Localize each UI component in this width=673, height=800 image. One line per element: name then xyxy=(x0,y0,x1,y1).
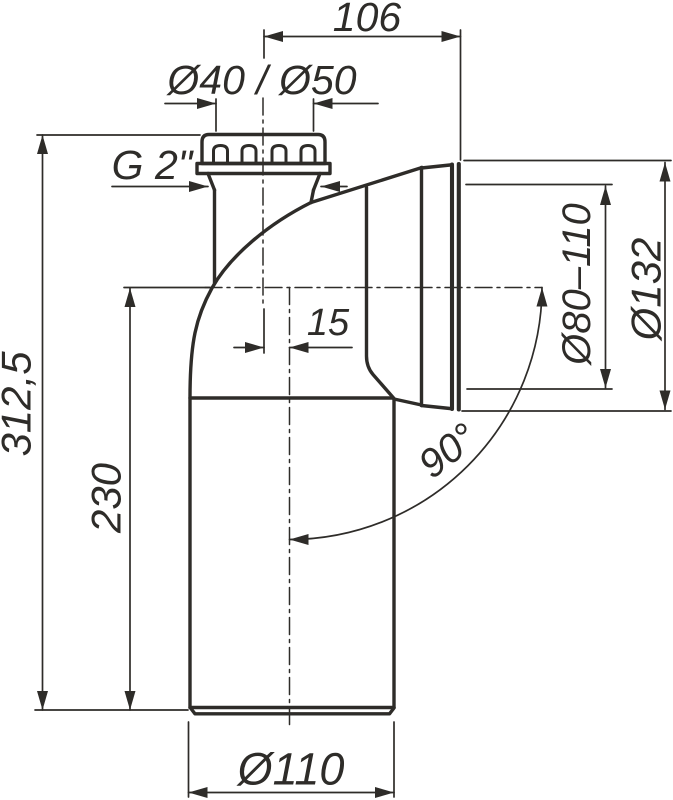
body-right-edge xyxy=(367,188,395,399)
elbow-fitting-drawing: 106 Ø40 / Ø50 G 2" 312,5 230 15 Ø80–110 … xyxy=(0,0,673,800)
socket-bottom-edge xyxy=(422,406,451,409)
dim-outlet-axis-height xyxy=(124,288,210,711)
thread-slot-3 xyxy=(272,146,286,164)
label-axis-offset: 15 xyxy=(307,302,350,344)
socket-top-edge xyxy=(422,165,451,168)
thread-slot-4 xyxy=(301,146,315,164)
label-pipe-diameter: Ø110 xyxy=(236,744,345,795)
label-thread-size: G 2" xyxy=(112,142,195,188)
thread-slot-2 xyxy=(242,146,256,164)
elbow-outer-curve xyxy=(190,203,311,708)
thread-slot-1 xyxy=(214,146,228,164)
inlet-taper-left xyxy=(208,174,215,191)
label-socket-inner-range: Ø80–110 xyxy=(555,203,599,367)
dim-total-height xyxy=(35,135,200,710)
label-inlet-diameters: Ø40 / Ø50 xyxy=(165,57,356,103)
label-socket-outer-diameter: Ø132 xyxy=(623,238,670,343)
technical-drawing-page: 106 Ø40 / Ø50 G 2" 312,5 230 15 Ø80–110 … xyxy=(0,0,673,800)
label-bend-angle: 90° xyxy=(411,415,486,487)
inlet-taper-right xyxy=(314,174,321,191)
label-top-width: 106 xyxy=(333,0,402,40)
socket-bottom-junction xyxy=(394,399,422,405)
label-outlet-axis-height: 230 xyxy=(83,462,130,534)
centerlines xyxy=(205,98,542,728)
label-total-height: 312,5 xyxy=(0,351,40,457)
fitting-body xyxy=(190,135,459,714)
